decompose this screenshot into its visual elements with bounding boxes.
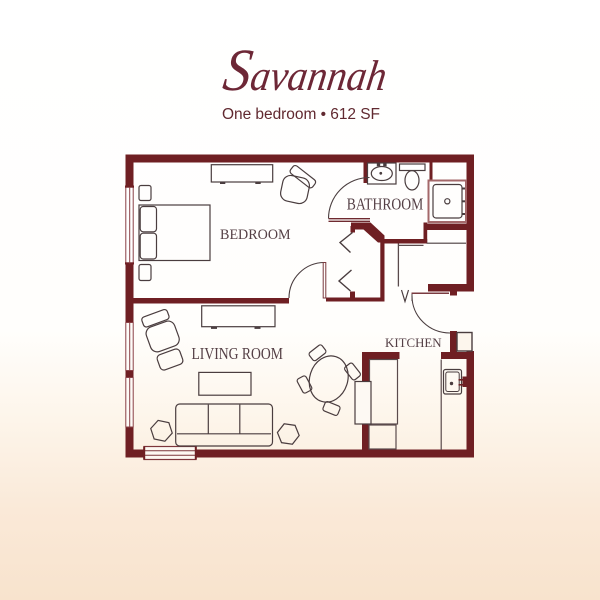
svg-text:One bedroom • 612 SF: One bedroom • 612 SF bbox=[222, 106, 380, 123]
svg-text:KITCHEN: KITCHEN bbox=[385, 336, 442, 350]
svg-text:BEDROOM: BEDROOM bbox=[220, 227, 291, 243]
svg-text:BATHROOM: BATHROOM bbox=[347, 195, 424, 214]
svg-text:LIVING ROOM: LIVING ROOM bbox=[191, 344, 283, 363]
